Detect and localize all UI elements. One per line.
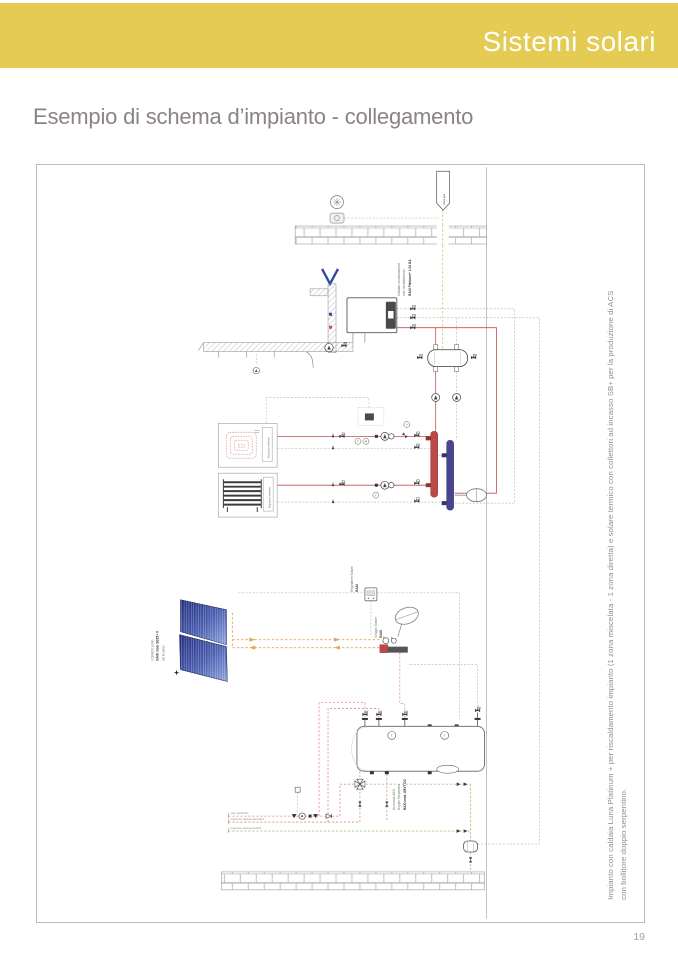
manifold-return: [442, 440, 454, 510]
diagram-frame: Linea gas Caldaia condensazione solo ris…: [36, 164, 645, 923]
line-label-cold-feed: Ingresso acqua fredda: [230, 826, 261, 830]
schematic-svg: Linea gas Caldaia condensazione solo ris…: [37, 165, 644, 922]
mixing-valve-cross: [355, 779, 365, 789]
header-title: Sistemi solari: [483, 26, 656, 58]
header-band: Sistemi solari: [0, 3, 678, 68]
solar-controller-label-1: Regolatore Solare: [350, 566, 354, 592]
line-label-dhw: Uso sanitario: [230, 811, 248, 815]
radiator-unit: Regolatore ambiente: [218, 473, 277, 517]
wall-top: [295, 225, 486, 245]
gas-line-flag: Linea gas: [437, 171, 450, 210]
boiler-label-2: solo riscaldamento: [402, 269, 406, 296]
caption-line-2: con bollitore doppio serpentino.: [619, 789, 628, 900]
hydraulic-separator: [417, 345, 476, 402]
outdoor-sensor-icon: [330, 196, 344, 223]
page-title: Esempio di schema d’impianto - collegame…: [33, 104, 473, 130]
line-label-cold-in: Ingresso acqua sanitaria: [230, 817, 264, 821]
collector-label-1: Collettori solari: [151, 639, 155, 660]
storage-tank: T T Accumulo ACS Doppio Serpentino BAXI …: [352, 707, 485, 810]
gas-flag-label: Linea gas: [442, 193, 446, 205]
boiler-label-1: Caldaia condensazione: [397, 263, 401, 296]
pipes-solar-orange: [232, 613, 380, 648]
tank-label-3: BAXI mod. UBVT DC: [403, 778, 407, 810]
catalog-page: Sistemi solari Esempio di schema d’impia…: [0, 0, 678, 959]
collector-label-2: BAXI mod. SB25+ V: [156, 630, 160, 661]
solar-controller-label-2: BAXI: [355, 584, 359, 592]
sensor-m: M: [365, 440, 367, 444]
solar-group-label-2: BAXI: [379, 630, 383, 638]
flue-terminal-icon: [322, 269, 338, 284]
zone-mixed-circuit: T M V: [332, 407, 419, 449]
room-regulator-label-1: Regolatore ambiente: [268, 436, 271, 458]
sensor-v: V: [406, 423, 408, 427]
solar-group-label-1: Gruppo Solare: [374, 617, 378, 638]
tank-top-ports: [362, 707, 481, 727]
solar-controller: Regolatore Solare BAXI: [350, 566, 377, 601]
room-regulator-label-2: Regolatore ambiente: [269, 486, 272, 508]
wall-bottom: [221, 872, 484, 890]
baseboard-radiator-band: [198, 342, 352, 373]
water-lines: Uso sanitario Ingresso acqua sanitaria I…: [228, 787, 331, 833]
boiler-label-3: BAXI Platinum+ 1.24 GA: [408, 259, 412, 296]
zone-direct-circuit: T: [332, 480, 419, 503]
caption-line-1: Impianto con caldaia Luna Platinum + per…: [606, 291, 615, 900]
floor-heating-unit: Regolatore ambiente: [218, 423, 277, 467]
expansion-vessel: [455, 489, 487, 502]
check-valve: [326, 814, 331, 818]
pipes-cold-green: [228, 784, 470, 872]
solar-pump-group: Gruppo Solare BAXI: [374, 604, 421, 652]
tank-label-2: Doppio Serpentino: [397, 784, 401, 811]
solar-collector: Collettori solari BAXI mod. SB25+ V ad i…: [151, 600, 228, 682]
sensor-box: [295, 787, 300, 792]
air-vent-icon: [175, 671, 179, 675]
manifold-supply: [426, 431, 438, 497]
boiler: Caldaia condensazione solo riscaldamento…: [310, 259, 415, 353]
page-number: 19: [633, 931, 645, 943]
cold-feed-station: [464, 841, 478, 863]
collector-label-3: ad incasso: [162, 645, 166, 660]
tank-label-1: Accumulo ACS: [392, 789, 396, 810]
